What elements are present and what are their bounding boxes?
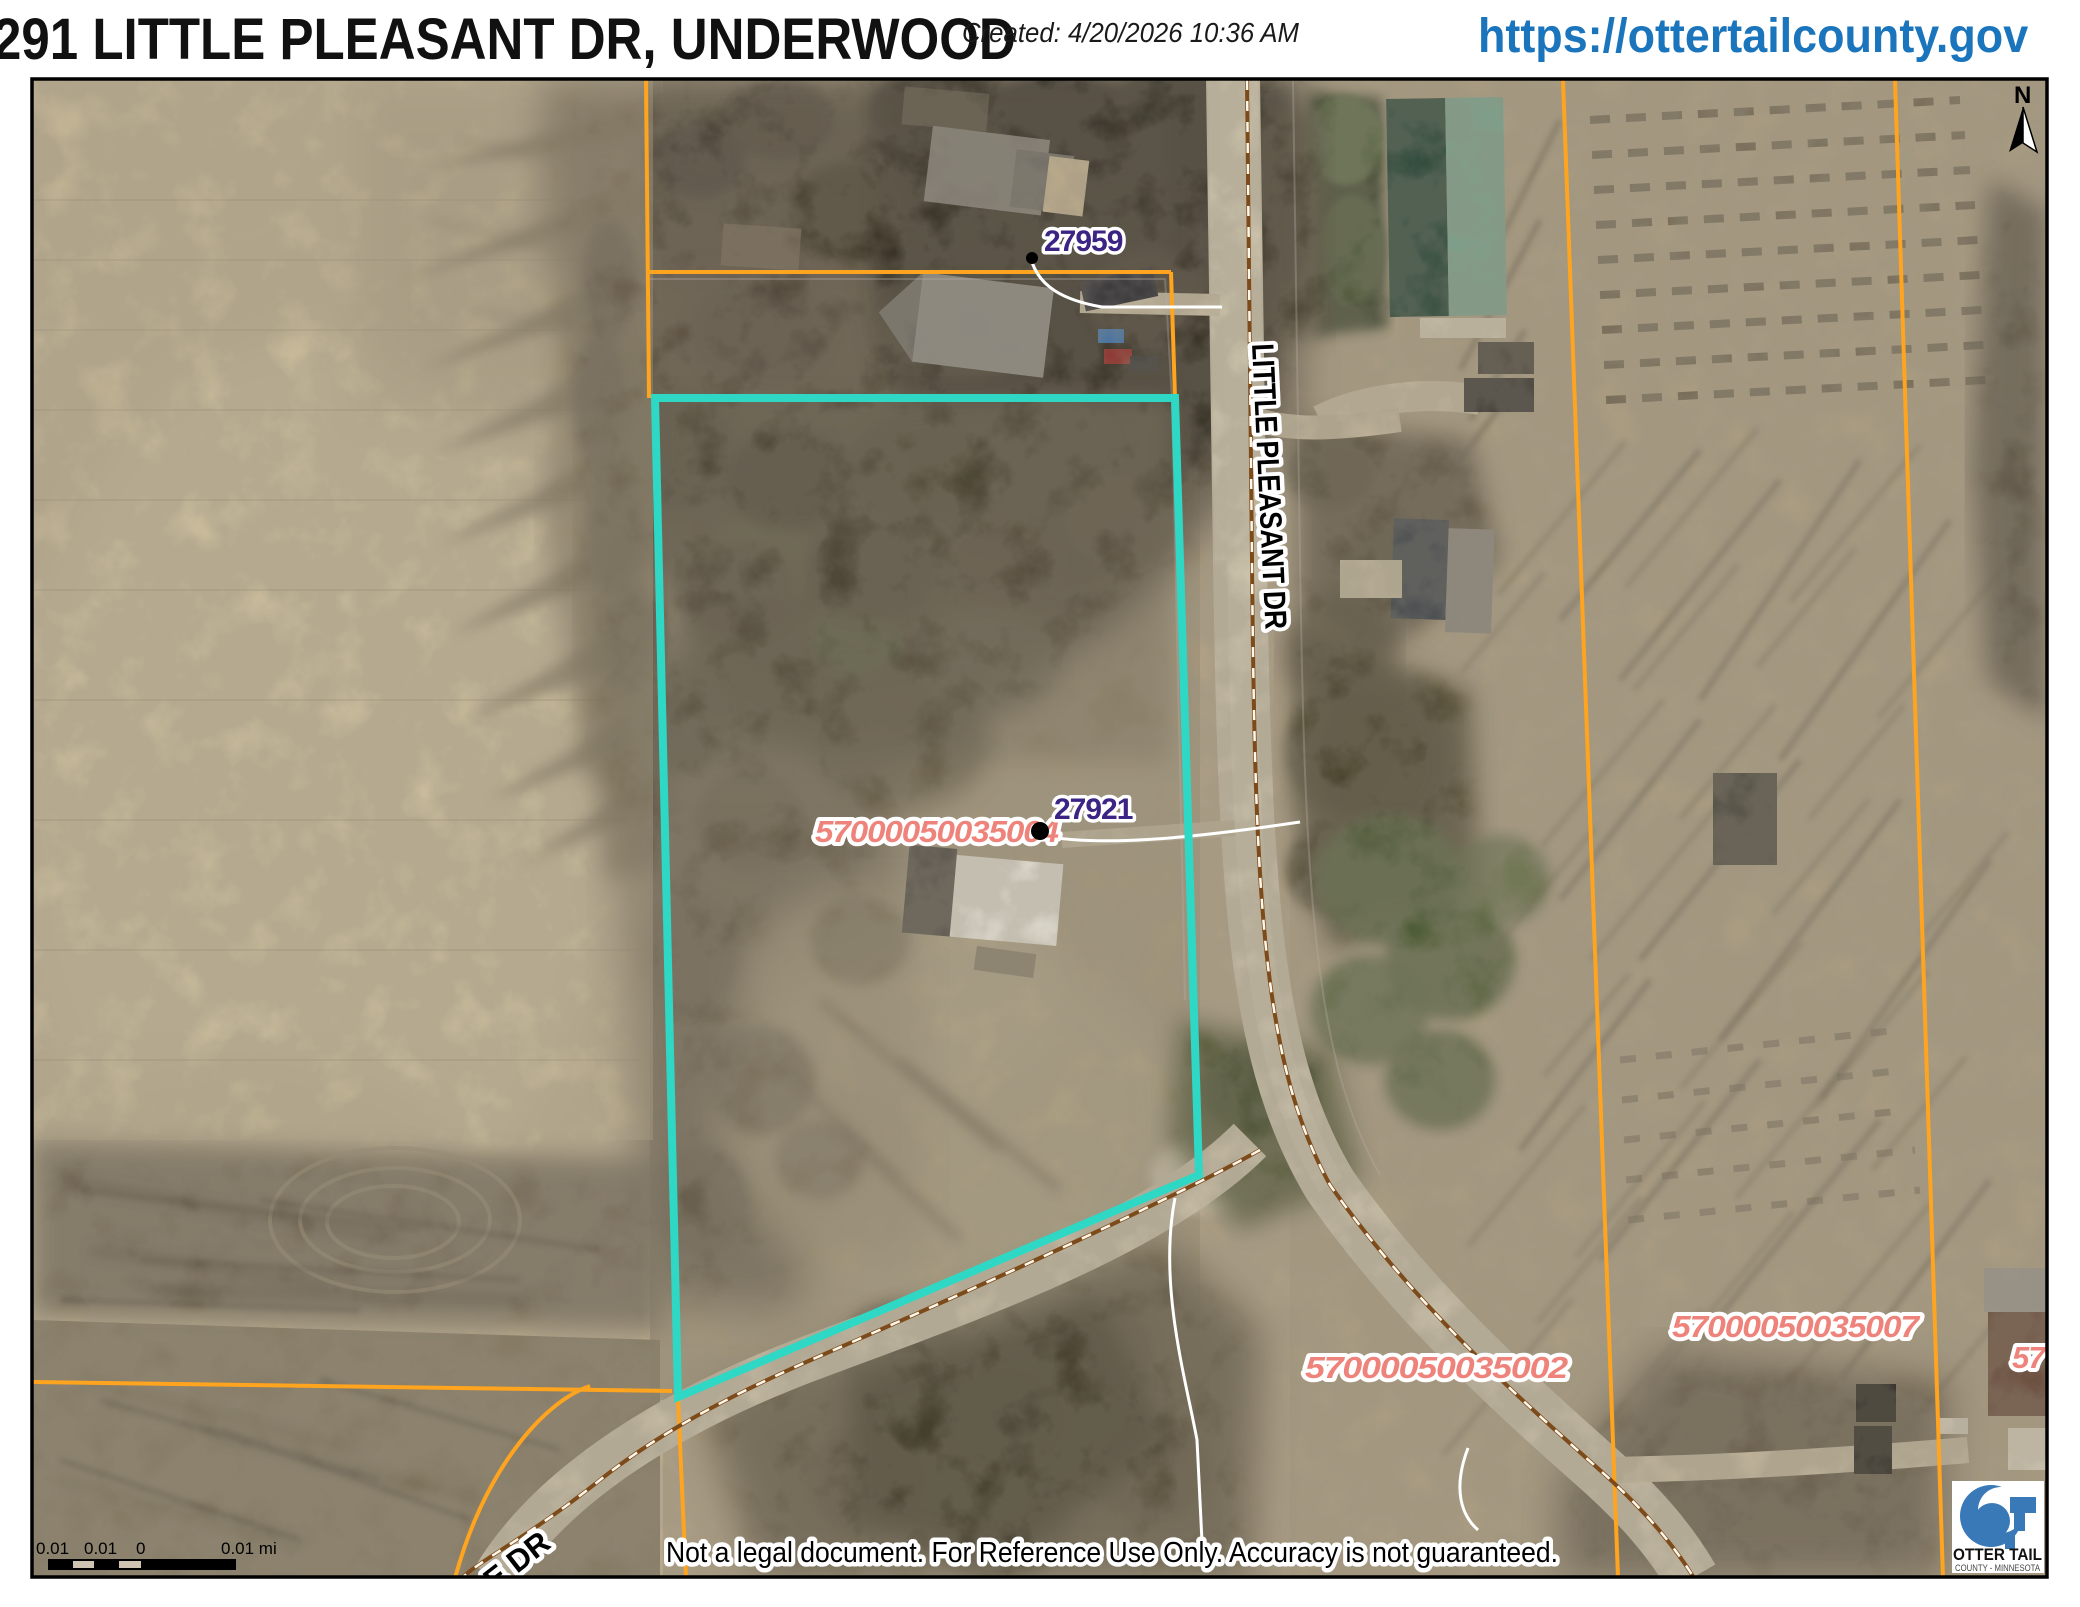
svg-text:57: 57 [2012, 1340, 2047, 1375]
svg-text:57000050035007: 57000050035007 [1672, 1309, 1921, 1344]
svg-text:0: 0 [136, 1539, 145, 1558]
svg-text:27959: 27959 [1044, 225, 1123, 258]
svg-text:N: N [2014, 82, 2031, 109]
svg-text:57000050035002: 57000050035002 [1305, 1350, 1568, 1385]
svg-text:COUNTY - MINNESOTA: COUNTY - MINNESOTA [1955, 1563, 2040, 1573]
svg-text:0.01: 0.01 [84, 1539, 117, 1558]
svg-text:57000050035004: 57000050035004 [815, 814, 1059, 849]
svg-text:Not a legal document. For Refe: Not a legal document. For Reference Use … [666, 1537, 1558, 1569]
svg-text:OTTER TAIL: OTTER TAIL [1953, 1545, 2042, 1564]
svg-text:0.01: 0.01 [36, 1539, 69, 1558]
svg-text:0.01 mi: 0.01 mi [221, 1539, 277, 1558]
svg-text:27921: 27921 [1054, 793, 1133, 826]
